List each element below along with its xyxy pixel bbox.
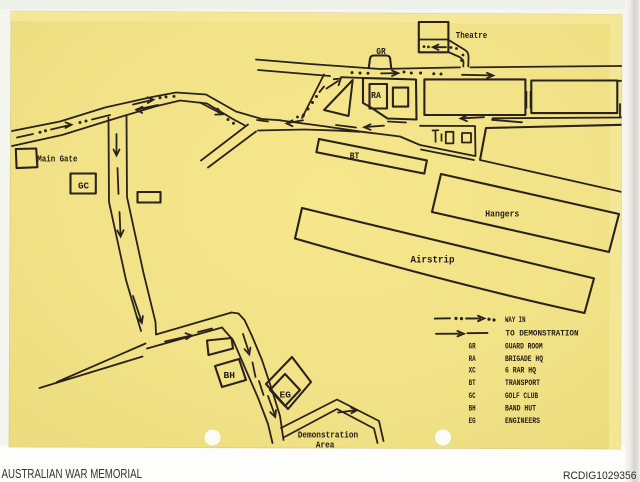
svg-text:GC: GC	[469, 392, 476, 401]
svg-text:Theatre: Theatre	[456, 31, 488, 41]
svg-text:EG: EG	[280, 391, 292, 401]
svg-text:BH: BH	[224, 371, 236, 381]
svg-text:6 RAR HQ: 6 RAR HQ	[505, 367, 536, 376]
svg-text:Main Gate: Main Gate	[37, 154, 77, 165]
svg-text:GR: GR	[376, 47, 386, 57]
svg-text:XC: XC	[469, 367, 476, 376]
svg-text:BT: BT	[469, 379, 476, 388]
svg-text:BH: BH	[469, 405, 476, 414]
svg-text:Hangers: Hangers	[485, 210, 519, 220]
svg-text:GC: GC	[78, 182, 90, 192]
svg-text:BAND HUT: BAND HUT	[505, 405, 536, 414]
svg-text:EG: EG	[469, 417, 476, 426]
svg-text:RA: RA	[469, 355, 476, 364]
svg-text:TO DEMONSTRATION: TO DEMONSTRATION	[506, 329, 579, 338]
svg-text:RA: RA	[371, 91, 382, 101]
svg-text:BT: BT	[350, 152, 360, 162]
svg-text:GUARD ROOM: GUARD ROOM	[505, 343, 543, 352]
svg-text:TRANSPORT: TRANSPORT	[505, 379, 540, 388]
svg-text:WAY IN: WAY IN	[505, 316, 526, 325]
svg-text:GR: GR	[469, 343, 476, 352]
svg-text:RCDIG1029356: RCDIG1029356	[563, 470, 637, 482]
svg-text:BRIGADE HQ: BRIGADE HQ	[505, 355, 543, 364]
svg-text:Airstrip: Airstrip	[411, 255, 455, 267]
svg-text:AUSTRALIAN WAR MEMORIAL: AUSTRALIAN WAR MEMORIAL	[2, 466, 143, 481]
svg-text:GOLF CLUB: GOLF CLUB	[505, 392, 538, 401]
svg-text:ENGINEERS: ENGINEERS	[505, 417, 540, 426]
svg-text:Demonstration: Demonstration	[298, 431, 359, 441]
